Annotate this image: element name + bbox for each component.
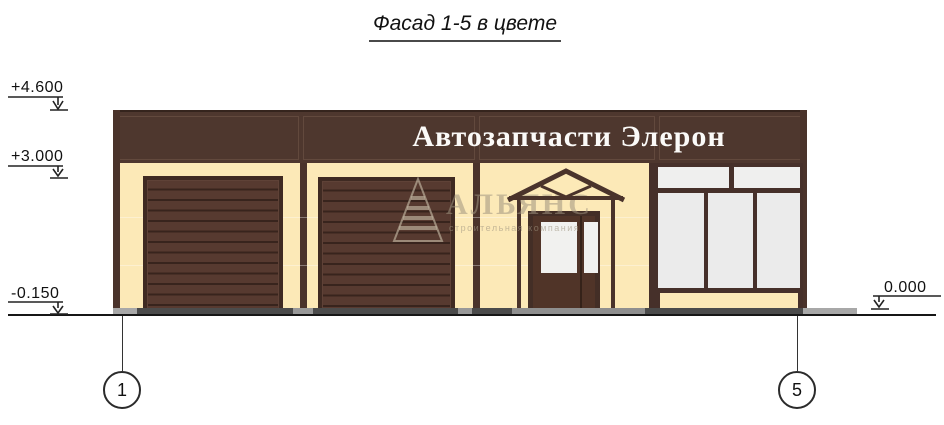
facade-drawing: Фасад 1-5 в цвете Автозапчасти Элерон [0,0,944,425]
elevation-label-ground: -0.150 [11,285,59,303]
pediment-truss [508,171,624,200]
watermark-pyramid-icon [394,179,442,241]
axis-number-right: 5 [792,380,802,400]
axis-bubble-5: 5 [778,371,816,409]
elevation-arrow-storefront [8,166,68,178]
elevation-arrow-roof [8,97,68,110]
elevation-label-roof: +4.600 [11,79,63,97]
axis-number-left: 1 [117,380,127,400]
elevation-arrow-ground [8,302,68,314]
linework-overlay [0,0,944,425]
elevation-label-storefront: +3.000 [11,148,63,166]
elevation-label-zero: 0.000 [884,279,927,297]
axis-bubble-1: 1 [103,371,141,409]
elevation-arrow-zero [871,296,941,309]
